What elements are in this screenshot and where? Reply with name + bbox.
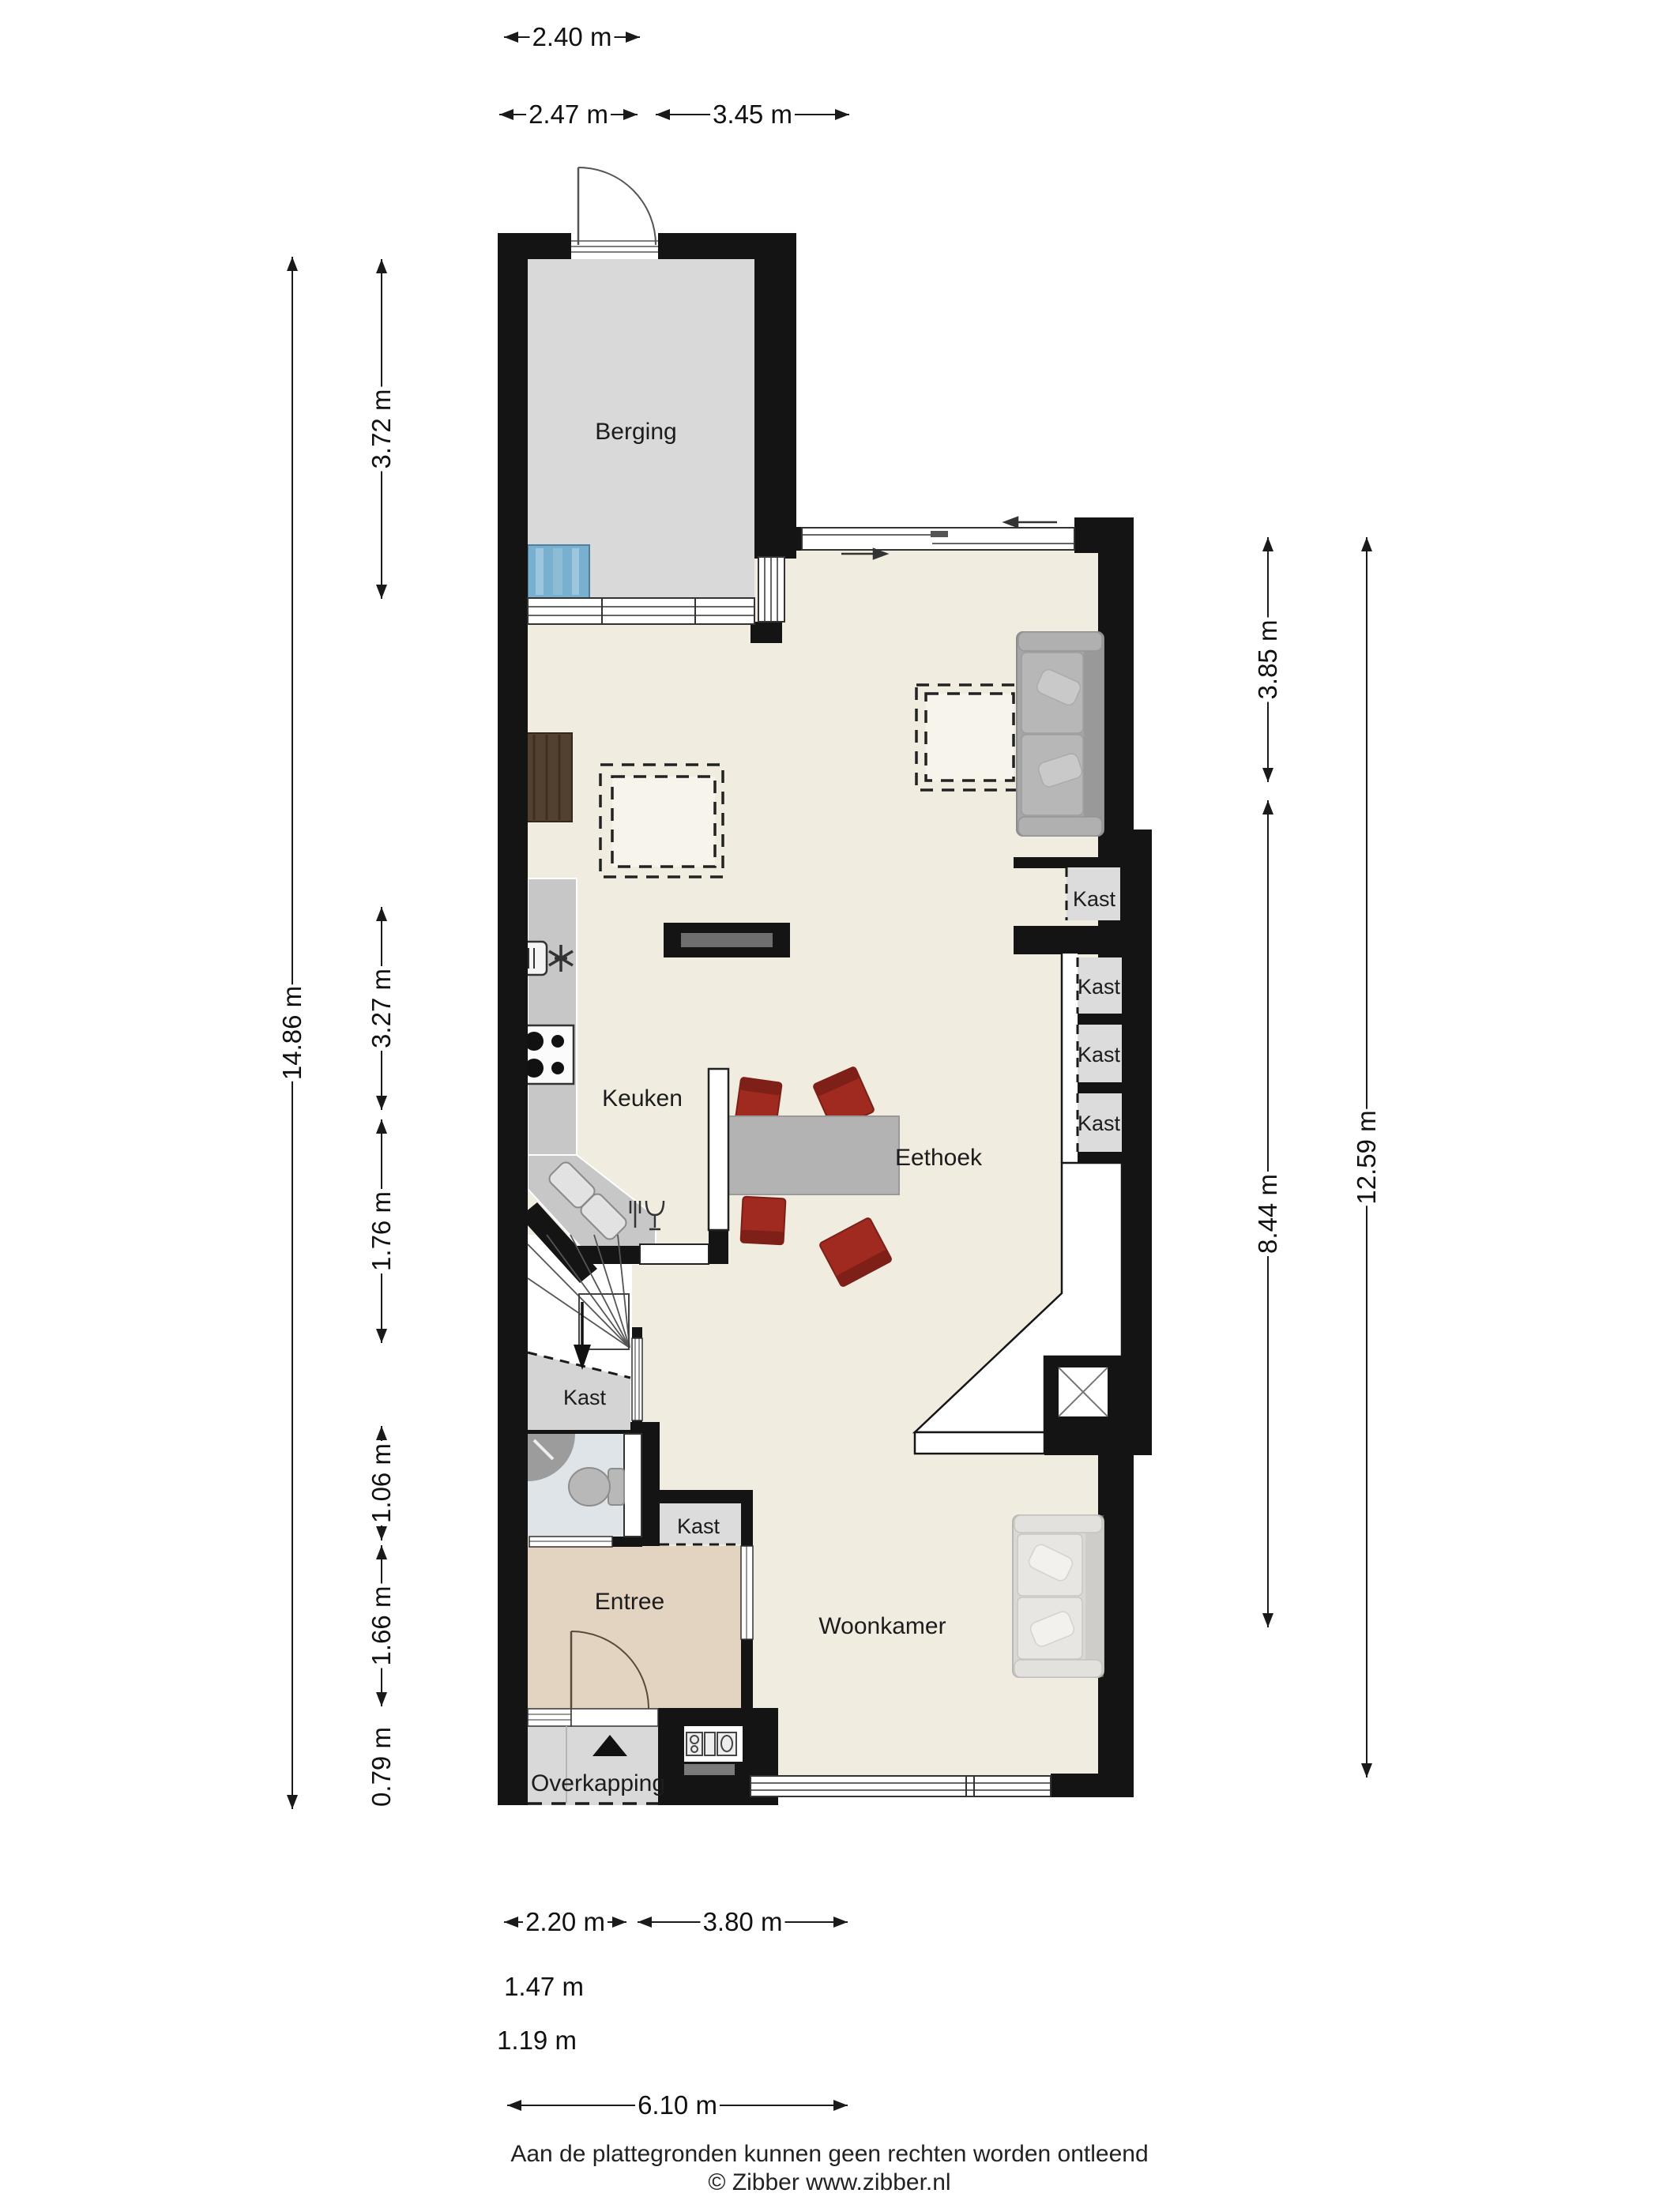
dimension-label: 14.86 m [277, 986, 307, 1080]
stove-icon [520, 1025, 574, 1084]
sofa-icon [1013, 1515, 1104, 1677]
woonkamer-window-icon [750, 1776, 1051, 1796]
dimension-14.86-m: 14.86 m [277, 257, 307, 1809]
dimension-label: 3.85 m [1253, 620, 1282, 700]
dimension-3.27-m: 3.27 m [367, 907, 396, 1110]
dimension-label: 1.06 m [367, 1443, 396, 1523]
dimension-1.76-m: 1.76 m [367, 1119, 396, 1343]
dimension-label: 1.66 m [367, 1586, 396, 1666]
toilet-icon [569, 1468, 624, 1506]
dimension-12.59-m: 12.59 m [1352, 537, 1381, 1777]
toilet-window-icon [529, 1537, 612, 1547]
meter-icon [705, 1732, 715, 1755]
dimension-3.72-m: 3.72 m [367, 259, 396, 599]
kitchen-opening [640, 1244, 709, 1264]
doormat-icon [684, 1764, 735, 1775]
dimension-label: 8.44 m [1253, 1174, 1282, 1254]
label-woonkamer: Woonkamer [818, 1613, 946, 1639]
toilet-door-icon [624, 1434, 641, 1537]
label-kast-a: Kast [1073, 887, 1116, 911]
dimension-label: 6.10 m [638, 2090, 717, 2120]
partition-wall [709, 1069, 728, 1230]
dimension-8.44-m: 8.44 m [1253, 800, 1282, 1627]
label-entree: Entree [595, 1589, 664, 1615]
dimension-3.80-m: 3.80 m [638, 1907, 848, 1936]
sideboard-icon [664, 923, 790, 957]
dimension-3.45-m: 3.45 m [656, 100, 849, 129]
dashed-placeholder-rect [916, 685, 1021, 790]
dimension-6.10-m: 6.10 m [507, 2090, 848, 2120]
dimension-label: 2.20 m [525, 1907, 605, 1936]
dimension-label: 3.80 m [703, 1907, 783, 1936]
label-eethoek: Eethoek [895, 1145, 983, 1171]
floor-entree [528, 1546, 741, 1709]
dimension-label: 3.45 m [713, 100, 792, 129]
footer-disclaimer: Aan de plattegronden kunnen geen rechten… [510, 2141, 1148, 2167]
floor-plan: Berging Keuken Eethoek Woonkamer Entree … [0, 0, 1659, 2212]
label-keuken: Keuken [602, 1085, 683, 1112]
sofa-icon [1017, 632, 1104, 836]
stair-glass-icon [632, 1338, 642, 1420]
dashed-placeholder-rect [600, 765, 723, 877]
berging-door-icon [571, 167, 658, 256]
dimension-1.06-m: 1.06 m [367, 1426, 396, 1540]
dimension-label: 2.40 m [532, 22, 612, 51]
shaft-icon [1044, 1356, 1122, 1429]
berging-side-window-icon [758, 557, 784, 622]
dimension-1.19-m: 1.19 m [495, 2026, 579, 2055]
dimension-label: 3.27 m [367, 969, 396, 1048]
dimension-2.47-m: 2.47 m [499, 100, 638, 129]
footer-copyright: © Zibber www.zibber.nl [708, 2169, 950, 2195]
dimension-label: 1.47 m [504, 1972, 584, 2001]
dimension-2.40-m: 2.40 m [504, 22, 640, 51]
dimension-label: 12.59 m [1352, 1110, 1381, 1204]
washing-machine-icon [528, 545, 589, 598]
meter-cupboard [684, 1726, 743, 1775]
entree-side-window-icon [741, 1546, 753, 1639]
label-kast-hall: Kast [677, 1514, 720, 1538]
dimension-2.20-m: 2.20 m [504, 1907, 626, 1936]
dimension-label: 3.72 m [367, 389, 396, 469]
label-berging: Berging [595, 419, 676, 445]
dimension-0.79-m: 0.79 m [367, 1725, 396, 1809]
dimension-label: 0.79 m [367, 1727, 396, 1807]
ledge [915, 1432, 1044, 1454]
floor-plan-page: Berging Keuken Eethoek Woonkamer Entree … [0, 0, 1659, 2212]
berging-window-icon [528, 598, 754, 624]
dining-table-icon [728, 1116, 899, 1194]
dimension-1.47-m: 1.47 m [502, 1972, 586, 2001]
label-overkapping: Overkapping [531, 1770, 665, 1796]
entree-window-icon [528, 1709, 571, 1726]
dimension-label: 1.76 m [367, 1191, 396, 1271]
label-kast-stairs: Kast [563, 1386, 607, 1409]
dimension-3.85-m: 3.85 m [1253, 537, 1282, 782]
dimension-label: 2.47 m [529, 100, 608, 129]
chair-icon [741, 1197, 786, 1245]
label-kast-d: Kast [1078, 1112, 1121, 1135]
label-kast-c: Kast [1078, 1043, 1121, 1066]
dimension-label: 1.19 m [497, 2026, 577, 2055]
label-kast-b: Kast [1078, 975, 1121, 999]
dimension-1.66-m: 1.66 m [367, 1545, 396, 1706]
